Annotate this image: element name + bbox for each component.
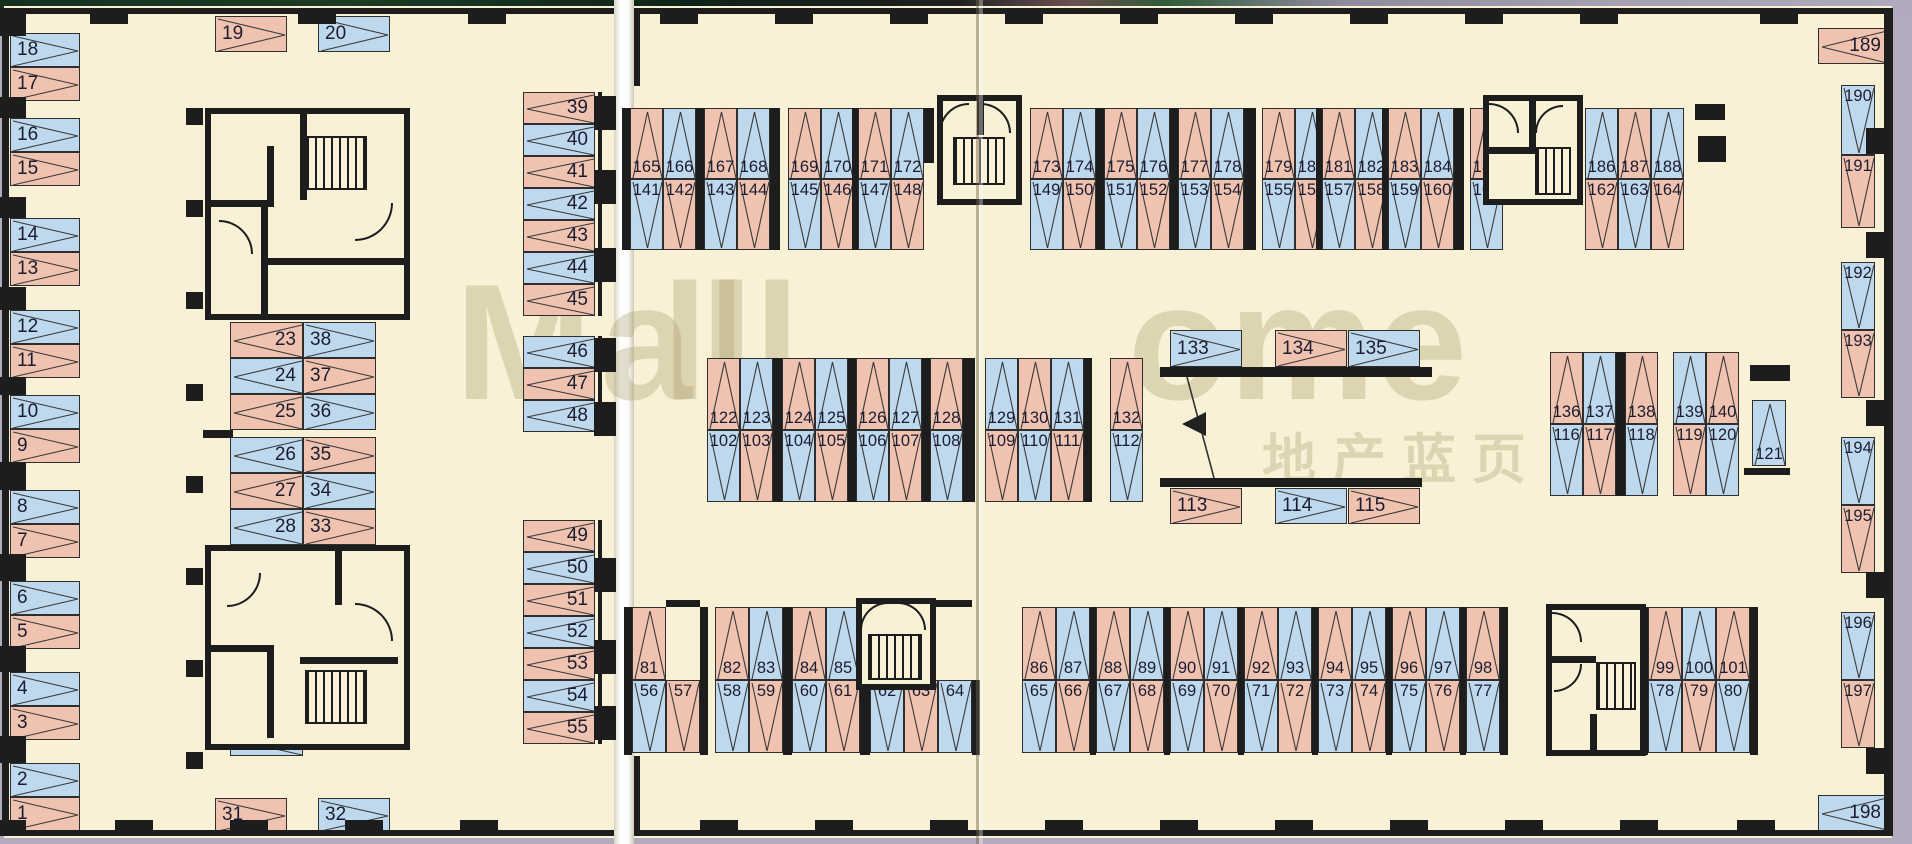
- stall-160: 160: [1421, 179, 1454, 250]
- stall-number: 61: [834, 682, 852, 701]
- wall: [1460, 607, 1466, 755]
- stall-number: 151: [1107, 181, 1135, 200]
- wall: [624, 607, 632, 755]
- stall-number: 69: [1178, 682, 1196, 701]
- stall-157: 157: [1322, 179, 1355, 250]
- stall-26: 26: [230, 437, 303, 473]
- stall-number: 28: [275, 516, 296, 538]
- stall-173: 173: [1030, 108, 1063, 179]
- stall-151: 151: [1104, 179, 1137, 250]
- wall: [186, 108, 203, 125]
- stall-114: 114: [1275, 488, 1347, 524]
- stall-number: 17: [17, 73, 38, 95]
- stall-164: 164: [1651, 179, 1684, 250]
- stall-number: 51: [567, 589, 588, 611]
- wall: [815, 820, 853, 834]
- wall: [1244, 108, 1256, 250]
- stall-number: 97: [1434, 659, 1452, 678]
- stall-24: 24: [230, 358, 303, 394]
- stall-number: 45: [567, 289, 588, 311]
- wall: [345, 820, 383, 834]
- stall-116: 116: [1550, 424, 1583, 496]
- stall-58: 58: [715, 680, 749, 753]
- stall-99: 99: [1648, 607, 1682, 680]
- stall-number: 2: [17, 769, 28, 791]
- wall: [1737, 820, 1775, 834]
- stall-number: 189: [1849, 35, 1881, 57]
- stall-number: 127: [892, 409, 920, 428]
- stall-number: 198: [1849, 802, 1881, 824]
- stall-139: 139: [1673, 352, 1706, 424]
- wall: [468, 8, 506, 24]
- stall-77: 77: [1466, 680, 1500, 753]
- stall-74: 74: [1352, 680, 1386, 753]
- stall-number: 3: [17, 712, 28, 734]
- stall-2: 2: [10, 763, 80, 797]
- stall-84: 84: [792, 607, 826, 680]
- stall-number: 187: [1621, 158, 1649, 177]
- stall-number: 138: [1628, 403, 1656, 422]
- stall-number: 179: [1265, 158, 1293, 177]
- stall-number: 15: [17, 158, 38, 180]
- stall-number: 65: [1030, 682, 1048, 701]
- stall-174: 174: [1063, 108, 1096, 179]
- wall: [0, 377, 26, 395]
- stall-150: 150: [1063, 179, 1096, 250]
- stairs-icon: [305, 670, 367, 724]
- wall: [1382, 108, 1388, 250]
- stall-number: 83: [757, 659, 775, 678]
- stall-39: 39: [523, 92, 595, 124]
- stall-172: 172: [891, 108, 924, 179]
- stall-93: 93: [1278, 607, 1312, 680]
- stall-number: 125: [818, 409, 846, 428]
- wall: [773, 358, 782, 502]
- stall-number: 111: [1055, 432, 1080, 451]
- stall-number: 41: [567, 161, 588, 183]
- stall-number: 48: [567, 405, 588, 427]
- building-wall: [1483, 147, 1535, 154]
- stall-38: 38: [303, 322, 376, 358]
- stall-113: 113: [1170, 488, 1242, 524]
- wall: [1235, 8, 1273, 24]
- building-wall: [1590, 714, 1597, 750]
- stall-47: 47: [523, 368, 595, 400]
- stall-83: 83: [749, 607, 783, 680]
- wall: [1390, 820, 1428, 834]
- stall-40: 40: [523, 124, 595, 156]
- stall-41: 41: [523, 156, 595, 188]
- stairs-icon: [868, 634, 922, 680]
- stall-number: 81: [640, 659, 658, 678]
- stall-number: 6: [17, 587, 28, 609]
- stall-44: 44: [523, 252, 595, 284]
- stall-79: 79: [1682, 680, 1716, 753]
- stall-126: 126: [856, 358, 889, 430]
- stall-89: 89: [1130, 607, 1164, 680]
- stall-number: 60: [800, 682, 818, 701]
- stall-number: 96: [1400, 659, 1418, 678]
- stall-number: 129: [988, 409, 1016, 428]
- stall-143: 143: [704, 179, 737, 250]
- stall-106: 106: [856, 430, 889, 502]
- stall-59: 59: [749, 680, 783, 753]
- wall: [1350, 8, 1388, 24]
- wall: [0, 736, 26, 763]
- wall: [700, 607, 708, 755]
- stall-number: 46: [567, 341, 588, 363]
- stall-number: 39: [567, 97, 588, 119]
- stall-23: 23: [230, 322, 303, 358]
- stall-number: 59: [757, 682, 775, 701]
- wall: [1505, 820, 1543, 834]
- stall-104: 104: [782, 430, 815, 502]
- wall: [852, 108, 858, 250]
- stairs-icon: [1535, 147, 1571, 195]
- stall-136: 136: [1550, 352, 1583, 424]
- stall-55: 55: [523, 712, 595, 744]
- stall-162: 162: [1585, 179, 1618, 250]
- wall: [1160, 478, 1422, 487]
- stall-number: 165: [633, 158, 661, 177]
- stall-43: 43: [523, 220, 595, 252]
- stall-number: 162: [1588, 181, 1616, 200]
- wall: [936, 600, 972, 607]
- stall-number: 10: [17, 401, 38, 423]
- wall: [666, 600, 700, 607]
- stall-56: 56: [632, 680, 666, 753]
- building-wall: [205, 200, 267, 207]
- stall-118: 118: [1625, 424, 1658, 496]
- stall-number: 115: [1355, 495, 1385, 517]
- stall-69: 69: [1170, 680, 1204, 753]
- stall-number: 93: [1286, 659, 1304, 678]
- stall-number: 132: [1113, 409, 1141, 428]
- stall-194: 194: [1841, 437, 1875, 505]
- building-wall: [205, 645, 267, 652]
- stall-number: 66: [1064, 682, 1082, 701]
- wall: [1090, 607, 1096, 755]
- stall-number: 181: [1325, 158, 1353, 177]
- wall: [1238, 607, 1244, 755]
- wall: [1620, 820, 1658, 834]
- stall-133: 133: [1170, 330, 1242, 367]
- stall-65: 65: [1022, 680, 1056, 753]
- stall-number: 16: [17, 124, 38, 146]
- stall-9: 9: [10, 429, 80, 463]
- stall-number: 170: [824, 158, 852, 177]
- stall-number: 84: [800, 659, 818, 678]
- stall-number: 58: [723, 682, 741, 701]
- stall-110: 110: [1018, 430, 1051, 502]
- stall-123: 123: [740, 358, 773, 430]
- wall: [594, 706, 616, 740]
- stall-number: 42: [567, 193, 588, 215]
- stall-number: 86: [1030, 659, 1048, 678]
- stall-187: 187: [1618, 108, 1651, 179]
- stall-111: 111: [1051, 430, 1084, 502]
- stall-165: 165: [630, 108, 663, 179]
- stall-number: 99: [1656, 659, 1674, 678]
- stall-54: 54: [523, 680, 595, 712]
- wall: [1160, 367, 1432, 377]
- stall-87: 87: [1056, 607, 1090, 680]
- stall-number: 139: [1676, 403, 1704, 422]
- stall-number: 137: [1586, 403, 1614, 422]
- stall-154: 154: [1211, 179, 1244, 250]
- stall-189: 189: [1818, 28, 1888, 64]
- building-wall: [300, 657, 398, 664]
- stall-140: 140: [1706, 352, 1739, 424]
- stall-number: 177: [1181, 158, 1209, 177]
- stall-198: 198: [1818, 795, 1888, 831]
- wall: [1616, 352, 1625, 496]
- wall: [1750, 607, 1758, 755]
- stall-number: 101: [1719, 659, 1747, 678]
- stall-number: 144: [740, 181, 768, 200]
- stall-number: 44: [567, 257, 588, 279]
- stall-6: 6: [10, 581, 80, 615]
- stall-75: 75: [1392, 680, 1426, 753]
- stall-number: 152: [1140, 181, 1168, 200]
- stall-48: 48: [523, 400, 595, 432]
- stall-number: 120: [1709, 426, 1737, 445]
- stall-101: 101: [1716, 607, 1750, 680]
- stall-number: 52: [567, 621, 588, 643]
- wall: [594, 558, 616, 592]
- wall: [1744, 468, 1790, 475]
- stall-number: 191: [1844, 157, 1872, 176]
- stall-number: 143: [707, 181, 735, 200]
- stall-number: 20: [325, 23, 346, 45]
- stall-18: 18: [10, 33, 80, 67]
- stall-number: 122: [710, 409, 738, 428]
- wall: [1760, 8, 1798, 24]
- stall-78: 78: [1648, 680, 1682, 753]
- stall-number: 33: [310, 516, 331, 538]
- wall: [1454, 108, 1464, 250]
- wall: [594, 402, 616, 436]
- stall-195: 195: [1841, 505, 1875, 573]
- stall-number: 56: [640, 682, 658, 701]
- stall-number: 35: [310, 444, 331, 466]
- building-wall: [1529, 95, 1536, 147]
- stall-number: 118: [1628, 426, 1654, 445]
- wall: [1580, 8, 1618, 24]
- wall: [230, 820, 268, 834]
- stall-number: 169: [791, 158, 819, 177]
- stall-number: 64: [946, 682, 964, 701]
- stall-14: 14: [10, 218, 80, 252]
- stall-130: 130: [1018, 358, 1051, 430]
- stall-25: 25: [230, 394, 303, 430]
- stall-177: 177: [1178, 108, 1211, 179]
- wall: [696, 108, 704, 250]
- wall: [1120, 8, 1158, 24]
- wall: [0, 820, 26, 836]
- stall-72: 72: [1278, 680, 1312, 753]
- stall-number: 100: [1685, 659, 1713, 678]
- stall-number: 150: [1066, 181, 1094, 200]
- stall-number: 37: [310, 365, 331, 387]
- stall-91: 91: [1204, 607, 1238, 680]
- stall-number: 68: [1138, 682, 1156, 701]
- stall-number: 55: [567, 717, 588, 739]
- stall-number: 121: [1755, 445, 1783, 464]
- stall-167: 167: [704, 108, 737, 179]
- wall: [890, 8, 928, 24]
- stall-number: 149: [1033, 181, 1061, 200]
- stall-97: 97: [1426, 607, 1460, 680]
- wall: [775, 8, 813, 24]
- stall-number: 194: [1844, 439, 1872, 458]
- wall: [594, 640, 616, 674]
- stall-122: 122: [707, 358, 740, 430]
- building-wall: [267, 146, 274, 207]
- stall-number: 175: [1107, 158, 1135, 177]
- stall-number: 126: [859, 409, 887, 428]
- stall-number: 155: [1265, 181, 1293, 200]
- wall: [186, 752, 203, 769]
- wall: [1005, 8, 1043, 24]
- stall-number: 195: [1844, 507, 1872, 526]
- stall-number: 136: [1553, 403, 1581, 422]
- stall-number: 11: [17, 350, 37, 372]
- building-wall: [1546, 656, 1596, 663]
- stall-16: 16: [10, 118, 80, 152]
- stall-131: 131: [1051, 358, 1084, 430]
- stall-number: 50: [567, 557, 588, 579]
- stall-153: 153: [1178, 179, 1211, 250]
- wall: [1698, 136, 1726, 162]
- stall-159: 159: [1388, 179, 1421, 250]
- stall-number: 124: [785, 409, 813, 428]
- parking-floor-plan: Mall ll ome 地产蓝页 18171615141312111098765…: [0, 0, 1912, 844]
- stall-number: 43: [567, 225, 588, 247]
- wall: [783, 607, 792, 755]
- stall-number: 154: [1214, 181, 1242, 200]
- stall-66: 66: [1056, 680, 1090, 753]
- stall-188: 188: [1651, 108, 1684, 179]
- stall-number: 26: [275, 444, 296, 466]
- stall-138: 138: [1625, 352, 1658, 424]
- stall-number: 38: [310, 329, 331, 351]
- stall-45: 45: [523, 284, 595, 316]
- stairs-icon: [305, 136, 367, 190]
- stall-100: 100: [1682, 607, 1716, 680]
- stall-8: 8: [10, 490, 80, 524]
- stall-127: 127: [889, 358, 922, 430]
- stall-number: 47: [567, 373, 588, 395]
- stall-number: 88: [1104, 659, 1122, 678]
- stall-number: 130: [1021, 409, 1049, 428]
- stall-number: 178: [1214, 158, 1242, 177]
- stall-4: 4: [10, 672, 80, 706]
- building-wall: [268, 258, 410, 265]
- stall-number: 159: [1391, 181, 1419, 200]
- stall-5: 5: [10, 615, 80, 649]
- stall-number: 107: [892, 432, 920, 451]
- stall-193: 193: [1841, 330, 1875, 398]
- wall: [594, 338, 616, 372]
- stall-178: 178: [1211, 108, 1244, 179]
- wall: [1750, 365, 1790, 381]
- stall-number: 53: [567, 653, 588, 675]
- stall-70: 70: [1204, 680, 1238, 753]
- stall-92: 92: [1244, 607, 1278, 680]
- stall-number: 140: [1709, 403, 1737, 422]
- stall-96: 96: [1392, 607, 1426, 680]
- stall-number: 27: [275, 480, 296, 502]
- stall-152: 152: [1137, 179, 1170, 250]
- wall: [1465, 8, 1503, 24]
- stall-number: 147: [861, 181, 889, 200]
- stall-number: 116: [1553, 426, 1579, 445]
- stall-37: 37: [303, 358, 376, 394]
- stall-36: 36: [303, 394, 376, 430]
- stall-35: 35: [303, 437, 376, 473]
- wall: [186, 476, 203, 493]
- stall-109: 109: [985, 430, 1018, 502]
- wall: [115, 820, 153, 834]
- wall: [1386, 607, 1392, 755]
- wall: [460, 820, 498, 834]
- wall: [186, 292, 203, 309]
- wall: [770, 108, 780, 250]
- stall-number: 77: [1474, 682, 1492, 701]
- wall: [203, 430, 233, 438]
- stall-number: 141: [633, 181, 661, 200]
- wall: [1866, 232, 1886, 258]
- stall-number: 188: [1654, 158, 1682, 177]
- stall-117: 117: [1583, 424, 1616, 496]
- stall-number: 92: [1252, 659, 1270, 678]
- stall-number: 74: [1360, 682, 1378, 701]
- stall-number: 148: [894, 181, 922, 200]
- stall-number: 176: [1140, 158, 1168, 177]
- stall-number: 24: [275, 365, 296, 387]
- stall-49: 49: [523, 520, 595, 552]
- stall-146: 146: [821, 179, 854, 250]
- stall-149: 149: [1030, 179, 1063, 250]
- stall-number: 32: [325, 804, 346, 826]
- stall-103: 103: [740, 430, 773, 502]
- stall-number: 57: [674, 682, 692, 701]
- wall: [186, 200, 203, 217]
- stall-67: 67: [1096, 680, 1130, 753]
- stall-number: 18: [17, 39, 38, 61]
- stall-68: 68: [1130, 680, 1164, 753]
- stall-number: 23: [275, 329, 296, 351]
- wall: [930, 820, 968, 834]
- wall: [186, 568, 203, 585]
- stall-98: 98: [1466, 607, 1500, 680]
- stall-number: 131: [1054, 409, 1082, 428]
- stall-number: 25: [275, 401, 296, 423]
- wall: [298, 8, 336, 24]
- stall-number: 75: [1400, 682, 1418, 701]
- stall-number: 95: [1360, 659, 1378, 678]
- stairs-icon: [953, 137, 1005, 185]
- stall-number: 5: [17, 621, 28, 643]
- stall-112: 112: [1110, 430, 1143, 502]
- stall-number: 146: [824, 181, 852, 200]
- stairs-icon: [1596, 662, 1636, 710]
- stall-17: 17: [10, 67, 80, 101]
- stall-number: 103: [743, 432, 771, 451]
- stall-number: 82: [723, 659, 741, 678]
- stall-27: 27: [230, 473, 303, 509]
